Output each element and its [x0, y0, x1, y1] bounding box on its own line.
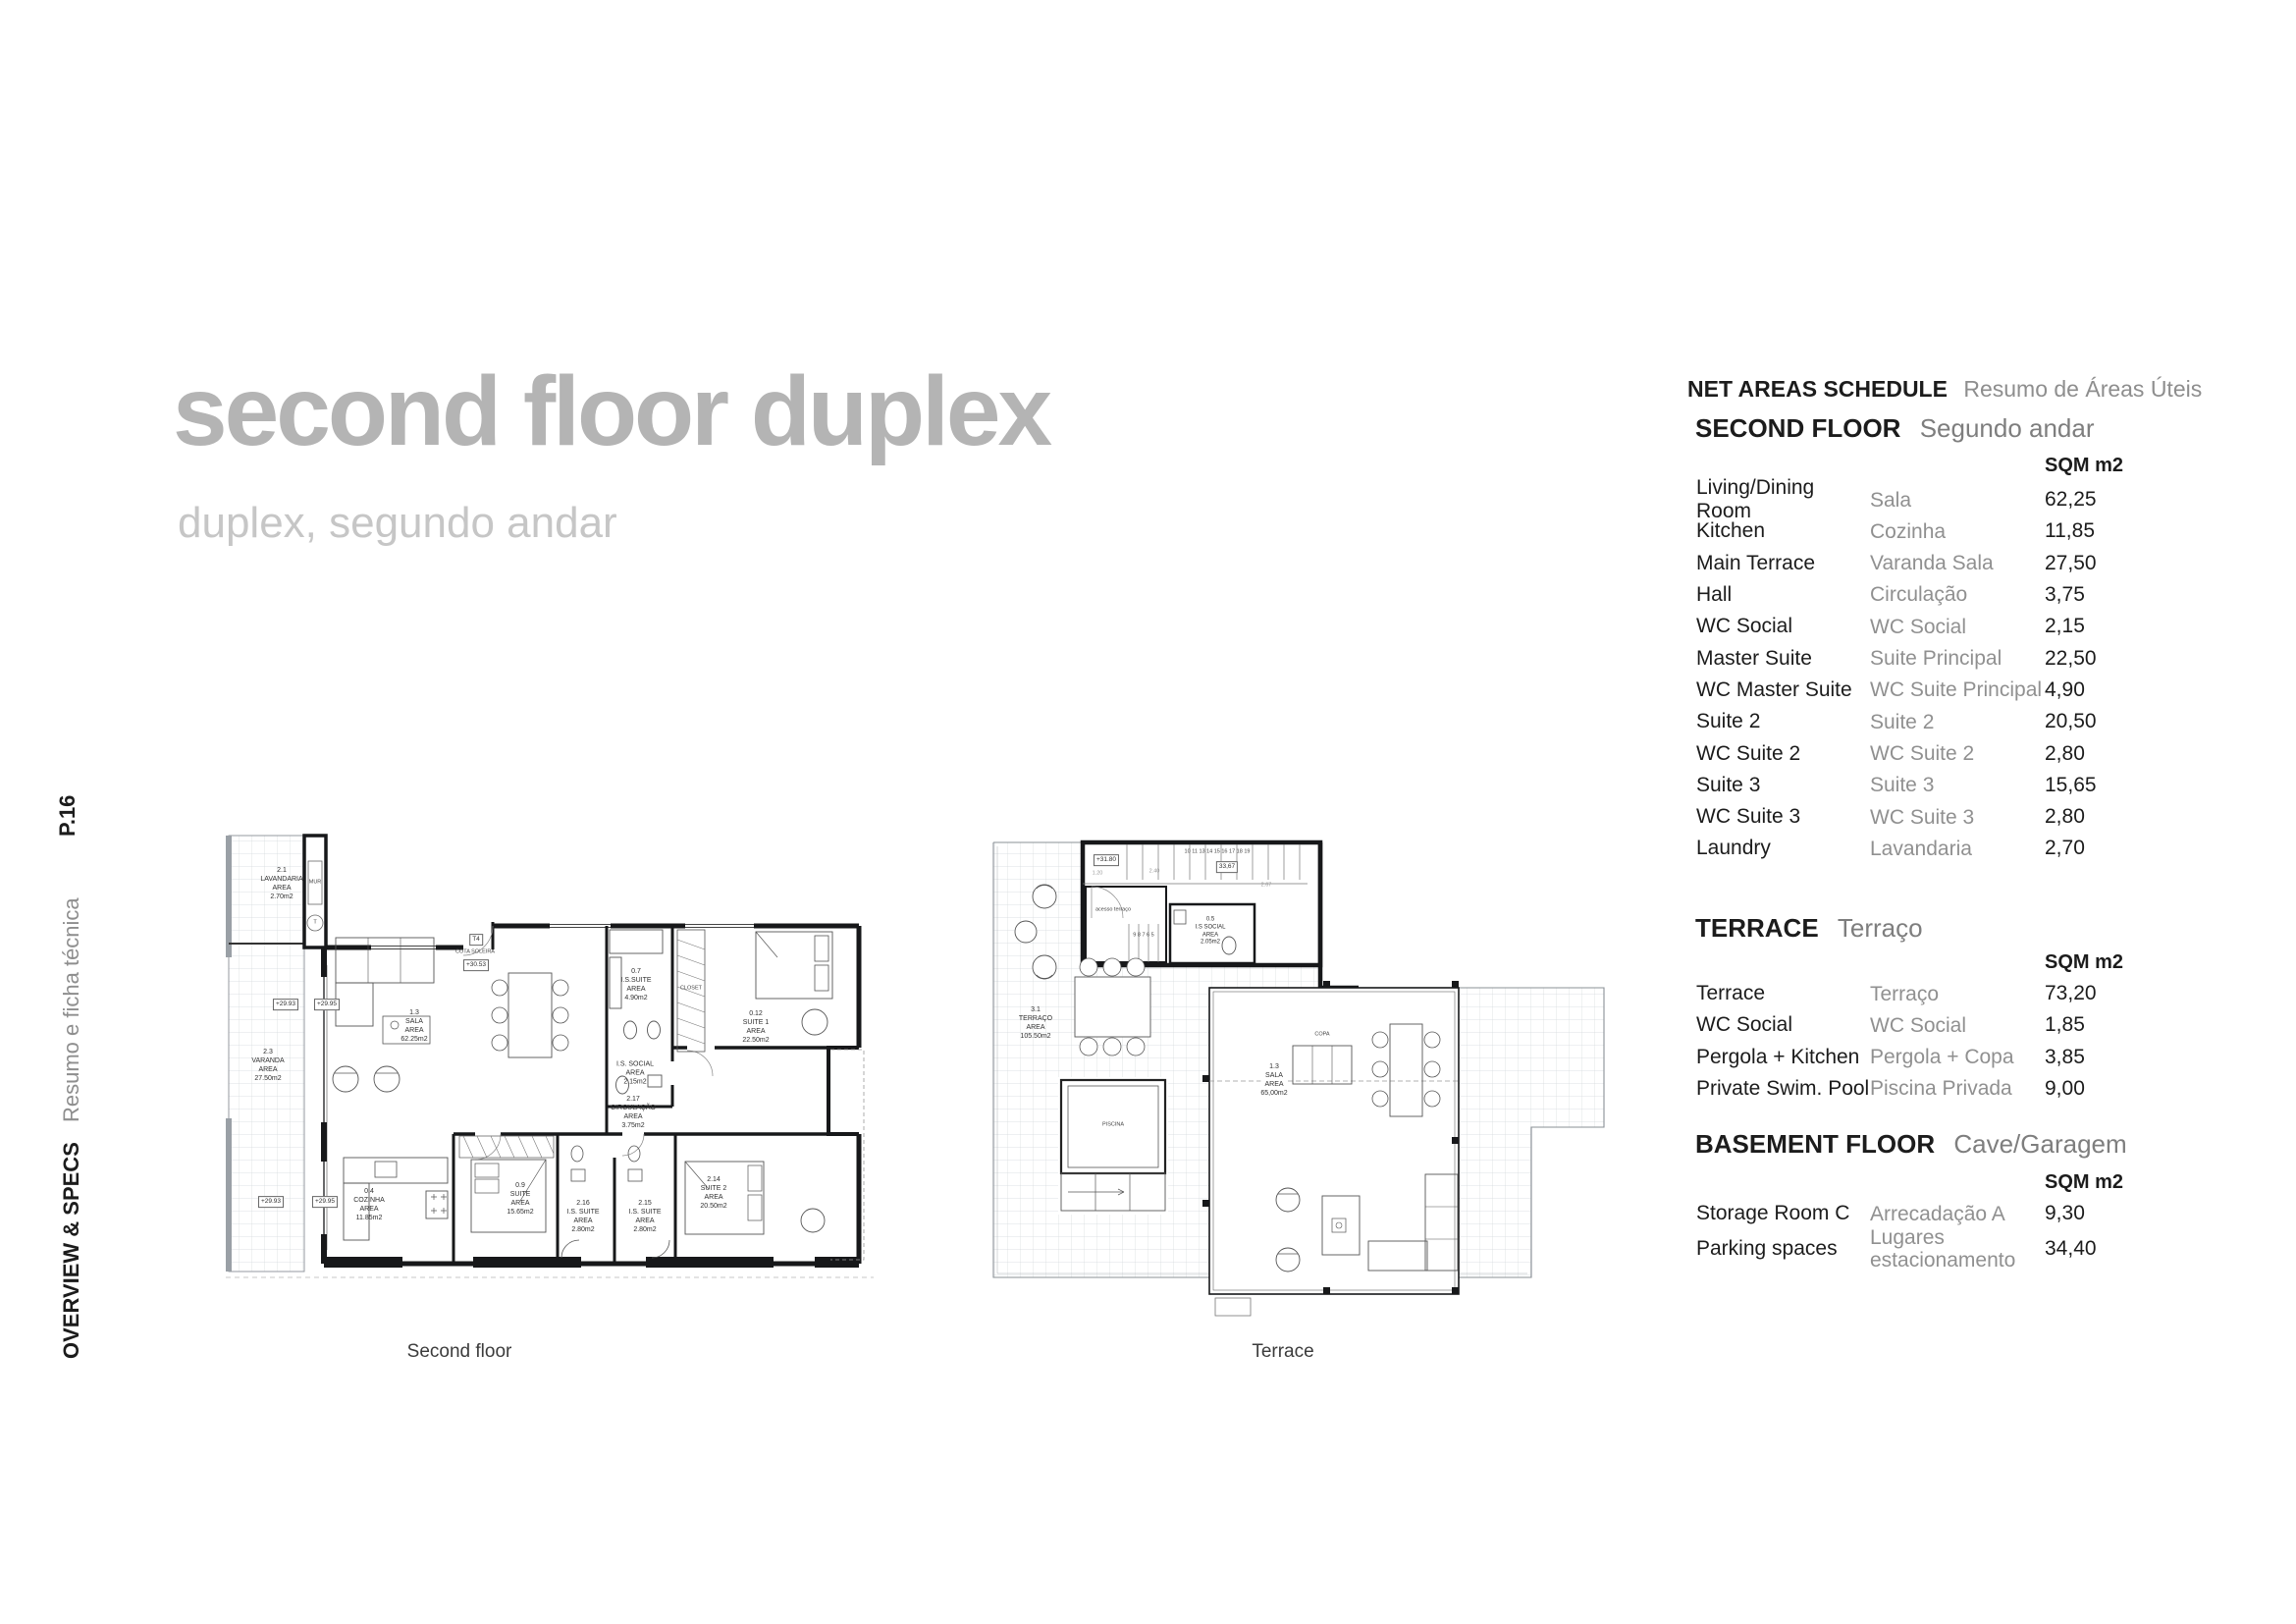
dimension-label: 2.40	[1149, 868, 1160, 875]
room-label-cozinha: 0.4 COZINHA AREA 11.85m2	[353, 1187, 385, 1222]
row-label-pt: Piscina Privada	[1870, 1073, 2045, 1105]
row-label-pt: Circulação	[1870, 579, 2045, 611]
unit-label: SQM m2	[2045, 1171, 2143, 1194]
elevation-marker: +29.93	[273, 999, 298, 1010]
marker-t: T	[313, 919, 316, 926]
row-label-pt: WC Suite 2	[1870, 737, 2045, 769]
dimension-label: 1.20	[1093, 870, 1103, 877]
elevation-marker: +31.80	[1094, 854, 1119, 866]
row-label-en: Storage Room C	[1696, 1198, 1870, 1229]
row-label-en: Suite 3	[1696, 770, 1870, 801]
dimension-marker: 33,67	[1216, 861, 1238, 873]
row-label-pt: Suite 3	[1870, 770, 2045, 801]
row-label-en: Terrace	[1696, 978, 1870, 1009]
row-label-pt: Suite Principal	[1870, 642, 2045, 674]
row-value: 9,00	[2045, 1073, 2143, 1105]
room-label-suite: 0.9 SUITE AREA 15.65m2	[507, 1181, 533, 1217]
row-value: 1,85	[2045, 1009, 2143, 1041]
section-heading-second-floor: SECOND FLOOR Segundo andar	[1695, 413, 2095, 444]
room-label-terraco: 3.1 TERRAÇO AREA 105.50m2	[1019, 1005, 1052, 1041]
room-label-is-suite: 0.7 I.S.SUITE AREA 4.90m2	[620, 967, 651, 1002]
room-label-circulacao: 2.17 CIRCULAÇÃO AREA 3.75m2	[611, 1095, 656, 1130]
row-label-en: WC Suite 3	[1696, 801, 1870, 833]
row-label-pt: Lavandaria	[1870, 833, 2045, 864]
room-label-sala: 1.3 SALA AREA 62.25m2	[400, 1008, 427, 1044]
row-label-pt: WC Social	[1870, 611, 2045, 642]
row-value: 2,80	[2045, 737, 2143, 769]
label-cota-soleira: COTA SOLEIRA	[455, 948, 495, 955]
schedule-header-pt: Resumo de Áreas Úteis	[1963, 376, 2202, 402]
section-rows-basement: Parking spacesLugares estacionamento34,4…	[1696, 1229, 2148, 1269]
dimension-label: 2.67	[1261, 882, 1272, 889]
stair-step-numbers: 9 8 7 6 5	[1133, 932, 1153, 939]
sidebar-label-en: OVERVIEW & SPECS	[59, 1142, 83, 1359]
page-number: P.16	[55, 795, 80, 837]
room-label-is-social: I.S. SOCIAL AREA 2.15m2	[616, 1059, 654, 1086]
row-label-pt: Arrecadação A	[1870, 1198, 2045, 1229]
floor-plan-terrace: +31.80 10 11 13 14 15 16 17 18 19 33,67 …	[982, 828, 1629, 1324]
row-label-en: Laundry	[1696, 833, 1870, 864]
marker-t4: T4	[469, 934, 483, 946]
row-label-en: Private Swim. Pool	[1696, 1073, 1870, 1105]
section-rows-second-floor: Living/Dining RoomSala62,25 KitchenCozin…	[1696, 484, 2148, 865]
unit-header-row: SQM m2	[1696, 1171, 2148, 1194]
row-label-pt: Cozinha	[1870, 515, 2045, 547]
row-label-pt: WC Social	[1870, 1009, 2045, 1041]
row-value: 2,15	[2045, 611, 2143, 642]
row-label-en: Living/Dining Room	[1696, 484, 1870, 515]
row-label-en: WC Social	[1696, 1009, 1870, 1041]
row-value: 15,65	[2045, 770, 2143, 801]
unit-header-row: SQM m2	[1696, 455, 2148, 477]
section-rows-basement: Storage Room CArrecadação A9,30	[1696, 1198, 2148, 1229]
section-rows-terrace: TerraceTerraço73,20 WC SocialWC Social1,…	[1696, 978, 2148, 1105]
elevation-marker: +30.53	[463, 959, 489, 971]
row-value: 2,80	[2045, 801, 2143, 833]
row-label-en: Master Suite	[1696, 642, 1870, 674]
room-label-is-suite-3: 2.15 I.S. SUITE AREA 2.80m2	[628, 1199, 661, 1234]
row-value: 20,50	[2045, 706, 2143, 737]
row-label-pt: Varanda Sala	[1870, 548, 2045, 579]
row-label-pt: Pergola + Copa	[1870, 1042, 2045, 1073]
row-label-en: WC Social	[1696, 611, 1870, 642]
room-label-is-suite-2: 2.16 I.S. SUITE AREA 2.80m2	[566, 1199, 599, 1234]
floor-plan-second-floor: 2.1 LAVANDARIA AREA 2.70m2 MUR T T4 COTA…	[226, 828, 874, 1289]
row-label-en: Main Terrace	[1696, 548, 1870, 579]
row-label-en: Suite 2	[1696, 706, 1870, 737]
plan-caption-terrace: Terrace	[1252, 1341, 1313, 1363]
row-value: 11,85	[2045, 515, 2143, 547]
unit-label: SQM m2	[2045, 951, 2143, 974]
row-label-pt: Terraço	[1870, 978, 2045, 1009]
page-subtitle: duplex, segundo andar	[178, 499, 617, 548]
section-heading-basement: BASEMENT FLOOR Cave/Garagem	[1695, 1129, 2127, 1160]
section-heading-terrace: TERRACE Terraço	[1695, 913, 1923, 944]
elevation-marker: +29.95	[314, 999, 340, 1010]
sidebar-label-pt: Resumo e ficha técnica	[59, 897, 83, 1122]
row-value: 2,70	[2045, 833, 2143, 864]
row-label-pt: WC Suite 3	[1870, 801, 2045, 833]
row-label-en: Parking spaces	[1696, 1229, 1870, 1269]
label-acesso-terraco: acesso terraço	[1095, 906, 1131, 913]
row-value: 3,85	[2045, 1042, 2143, 1073]
wall-label-mur: MUR	[309, 879, 322, 886]
room-label-suite2: 2.14 SUITE 2 AREA 20.50m2	[700, 1175, 726, 1211]
row-label-pt: WC Suite Principal	[1870, 675, 2045, 706]
row-value: 73,20	[2045, 978, 2143, 1009]
room-label-varanda: 2.3 VARANDA AREA 27.50m2	[251, 1048, 284, 1083]
schedule-header-en: NET AREAS SCHEDULE	[1687, 376, 1948, 402]
row-value: 34,40	[2045, 1229, 2143, 1269]
row-label-pt: Suite 2	[1870, 706, 2045, 737]
row-label-en: Pergola + Kitchen	[1696, 1042, 1870, 1073]
sidebar-section-label: OVERVIEW & SPECS Resumo e ficha técnica	[59, 897, 84, 1359]
row-value: 4,90	[2045, 675, 2143, 706]
unit-header-row: SQM m2	[1696, 951, 2148, 974]
room-label-piscina: PISCINA	[1102, 1121, 1124, 1128]
row-value: 62,25	[2045, 484, 2143, 515]
row-value: 3,75	[2045, 579, 2143, 611]
unit-label: SQM m2	[2045, 455, 2143, 477]
elevation-marker: +29.95	[312, 1196, 338, 1208]
floor-plan-terrace-drawing	[982, 828, 1629, 1324]
room-label-suite1: 0.12 SUITE 1 AREA 22.50m2	[742, 1009, 769, 1045]
floor-plan-second-floor-drawing	[226, 828, 874, 1289]
row-value: 22,50	[2045, 642, 2143, 674]
row-label-en: Hall	[1696, 579, 1870, 611]
row-value: 27,50	[2045, 548, 2143, 579]
room-label-copa: COPA	[1314, 1031, 1329, 1038]
room-label-lavandaria: 2.1 LAVANDARIA AREA 2.70m2	[260, 866, 302, 901]
page-title: second floor duplex	[173, 355, 1049, 468]
room-label-closet: CLOSET	[680, 985, 702, 992]
room-label-sala-terrace: 1.3 SALA AREA 65,00m2	[1260, 1062, 1287, 1098]
stair-step-numbers: 10 11 13 14 15 16 17 18 19	[1185, 848, 1251, 855]
room-label-is-social-terrace: 0.5 I.S SOCIAL AREA 2.05m2	[1195, 916, 1225, 947]
row-label-en: Kitchen	[1696, 515, 1870, 547]
schedule-header: NET AREAS SCHEDULE Resumo de Áreas Úteis	[1687, 376, 2202, 403]
elevation-marker: +29.93	[258, 1196, 284, 1208]
row-label-en: WC Master Suite	[1696, 675, 1870, 706]
row-label-pt: Sala	[1870, 484, 2045, 515]
row-label-pt: Lugares estacionamento	[1870, 1229, 2045, 1269]
row-label-en: WC Suite 2	[1696, 737, 1870, 769]
plan-caption-second-floor: Second floor	[407, 1341, 512, 1363]
row-value: 9,30	[2045, 1198, 2143, 1229]
brochure-page: second floor duplex duplex, segundo anda…	[0, 0, 2296, 1624]
